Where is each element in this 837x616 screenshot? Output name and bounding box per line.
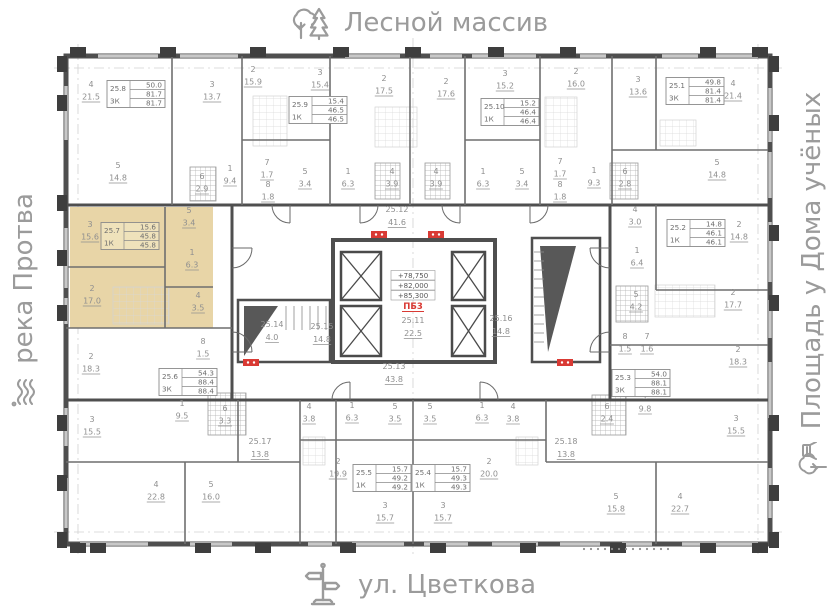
room-label: 315.5 (83, 415, 101, 437)
svg-text:5: 5 (714, 158, 719, 167)
svg-text:3: 3 (89, 415, 94, 424)
svg-text:2: 2 (250, 65, 255, 74)
svg-text:6.3: 6.3 (476, 414, 489, 423)
room-label: 421.4 (724, 79, 742, 101)
apartment-25.4[interactable]: 25.41К15.749.349.3 (412, 464, 470, 491)
common-label: 25.1713.8 (249, 437, 272, 460)
elevation-marks: +78,750+82,000+85,300ПБ3 (391, 271, 435, 313)
svg-text:5: 5 (427, 402, 432, 411)
svg-text:5: 5 (302, 167, 307, 176)
svg-text:22.5: 22.5 (404, 329, 422, 338)
svg-text:6: 6 (199, 172, 204, 181)
svg-text:16.0: 16.0 (202, 493, 220, 502)
svg-text:3: 3 (733, 414, 738, 423)
room-label: 219.9 (329, 457, 347, 479)
svg-text:18.3: 18.3 (82, 365, 100, 374)
svg-text:1: 1 (349, 401, 354, 410)
svg-text:88.4: 88.4 (198, 377, 214, 386)
svg-text:3К: 3К (162, 385, 172, 394)
svg-text:46.1: 46.1 (706, 237, 722, 246)
svg-text:1К: 1К (356, 481, 366, 490)
svg-text:15.5: 15.5 (727, 427, 745, 436)
svg-text:3.9: 3.9 (386, 180, 399, 189)
svg-text:4: 4 (195, 291, 200, 300)
svg-text:1: 1 (179, 399, 184, 408)
svg-text:17.0: 17.0 (83, 297, 101, 306)
svg-text:4: 4 (306, 402, 311, 411)
svg-text:45.8: 45.8 (140, 231, 156, 240)
room-label: 53.5 (423, 402, 437, 424)
apartment-25.5[interactable]: 25.51К15.749.249.2 (353, 464, 411, 491)
svg-text:81.7: 81.7 (146, 89, 162, 98)
svg-text:+82,000: +82,000 (398, 282, 428, 290)
svg-text:46.1: 46.1 (706, 228, 722, 237)
svg-text:13.8: 13.8 (251, 450, 269, 459)
common-label: 25.1241.6 (386, 205, 409, 228)
svg-text:20.0: 20.0 (480, 470, 498, 479)
svg-text:88.1: 88.1 (651, 378, 667, 387)
svg-text:2: 2 (736, 220, 741, 229)
elevator-core (333, 240, 495, 362)
svg-text:50.0: 50.0 (146, 80, 162, 89)
room-label: 217.6 (437, 77, 455, 99)
svg-text:6.3: 6.3 (346, 414, 359, 423)
svg-text:15.7: 15.7 (434, 514, 452, 523)
svg-text:25.11: 25.11 (402, 316, 425, 325)
svg-text:4.0: 4.0 (266, 333, 279, 342)
room-label: 81.5 (196, 337, 210, 359)
svg-text:3.8: 3.8 (303, 415, 316, 424)
svg-text:8: 8 (557, 180, 562, 189)
svg-text:21.4: 21.4 (724, 92, 742, 101)
room-label: 71.7 (260, 158, 274, 180)
floor-plan-area: 421.5313.7215.9315.4217.5217.6315.2216.0… (0, 0, 837, 612)
apartment-25.9[interactable]: 25.91К15.446.546.5 (289, 96, 347, 123)
svg-text:1.5: 1.5 (619, 345, 632, 354)
svg-text:17.5: 17.5 (375, 87, 393, 96)
svg-text:2.4: 2.4 (601, 415, 614, 424)
svg-text:2: 2 (735, 345, 740, 354)
room-label: 43.8 (506, 402, 520, 424)
svg-text:25.6: 25.6 (162, 372, 178, 381)
svg-text:6: 6 (222, 404, 227, 413)
apartment-25.2[interactable]: 25.21К14.846.146.1 (667, 219, 725, 246)
svg-text:2: 2 (730, 288, 735, 297)
svg-text:3: 3 (382, 501, 387, 510)
svg-text:6: 6 (604, 402, 609, 411)
svg-text:15.2: 15.2 (496, 82, 514, 91)
room-label: 19.4 (223, 164, 237, 186)
svg-text:3.9: 3.9 (430, 180, 443, 189)
svg-text:3.5: 3.5 (192, 304, 205, 313)
room-label: 220.0 (480, 457, 498, 479)
svg-text:1: 1 (345, 167, 350, 176)
svg-text:49.3: 49.3 (451, 473, 467, 482)
common-label: 25.144.0 (261, 320, 284, 343)
svg-text:5: 5 (186, 206, 191, 215)
room-label: 313.6 (629, 75, 647, 97)
svg-text:81.4: 81.4 (705, 86, 721, 95)
svg-text:4: 4 (433, 167, 438, 176)
svg-text:13.7: 13.7 (203, 93, 221, 102)
svg-text:46.5: 46.5 (328, 114, 344, 123)
svg-text:17.6: 17.6 (437, 90, 455, 99)
svg-text:15.6: 15.6 (140, 222, 156, 231)
apartment-25.3[interactable]: 25.33К54.088.188.1 (612, 369, 670, 396)
svg-text:1.7: 1.7 (554, 170, 567, 179)
svg-text:6.3: 6.3 (477, 180, 490, 189)
svg-text:13.6: 13.6 (629, 88, 647, 97)
room-label: 16.3 (476, 167, 490, 189)
svg-text:46.4: 46.4 (520, 107, 536, 116)
svg-text:15.4: 15.4 (311, 81, 329, 90)
svg-text:1.8: 1.8 (262, 193, 275, 202)
room-label: 81.8 (261, 180, 275, 202)
svg-text:25.13: 25.13 (383, 362, 406, 371)
svg-text:25.10: 25.10 (484, 102, 505, 111)
svg-text:17.7: 17.7 (724, 301, 742, 310)
svg-text:25.14: 25.14 (261, 320, 284, 329)
svg-text:25.7: 25.7 (104, 226, 120, 235)
svg-text:46.5: 46.5 (328, 105, 344, 114)
svg-text:3: 3 (502, 69, 507, 78)
svg-text:5: 5 (208, 480, 213, 489)
svg-text:8: 8 (622, 332, 627, 341)
svg-text:4: 4 (510, 402, 515, 411)
room-label: 422.8 (147, 480, 165, 502)
room-label: 515.8 (607, 492, 625, 514)
room-label: 53.4 (515, 167, 529, 189)
svg-text:9.5: 9.5 (176, 412, 189, 421)
svg-text:3.0: 3.0 (629, 218, 642, 227)
svg-text:2: 2 (381, 74, 386, 83)
svg-text:8: 8 (200, 337, 205, 346)
svg-text:3: 3 (209, 80, 214, 89)
room-label: 214.8 (730, 220, 748, 242)
svg-text:81.4: 81.4 (705, 95, 721, 104)
svg-text:49.2: 49.2 (392, 473, 408, 482)
svg-text:14.8: 14.8 (492, 327, 510, 336)
svg-text:3.4: 3.4 (183, 219, 196, 228)
svg-text:25.2: 25.2 (670, 223, 686, 232)
room-label: 16.3 (345, 401, 359, 423)
common-label: 25.1813.8 (555, 437, 578, 460)
svg-text:49.2: 49.2 (392, 482, 408, 491)
room-label: 421.5 (82, 80, 100, 102)
apartment-25.6[interactable]: 25.63К54.388.488.4 (159, 368, 217, 395)
svg-text:14.8: 14.8 (706, 219, 722, 228)
room-label: 315.7 (434, 501, 452, 523)
svg-text:2: 2 (573, 67, 578, 76)
svg-text:13.8: 13.8 (557, 450, 575, 459)
svg-text:3: 3 (317, 68, 322, 77)
svg-text:3: 3 (440, 501, 445, 510)
room-label: 19.3 (587, 166, 601, 188)
svg-text:6.3: 6.3 (186, 261, 199, 270)
svg-text:18.3: 18.3 (729, 358, 747, 367)
svg-text:25.12: 25.12 (386, 205, 409, 214)
svg-text:25.4: 25.4 (415, 468, 431, 477)
svg-text:3К: 3К (669, 94, 679, 103)
apartment-25.1[interactable]: 25.13К49.881.481.4 (666, 77, 724, 104)
svg-text:14.8: 14.8 (109, 174, 127, 183)
svg-text:3.5: 3.5 (389, 415, 402, 424)
room-label: 514.8 (109, 161, 127, 183)
svg-text:5: 5 (613, 492, 618, 501)
svg-text:16.0: 16.0 (567, 80, 585, 89)
svg-text:2: 2 (88, 352, 93, 361)
room-label: 19.5 (175, 399, 189, 421)
svg-text:1: 1 (480, 167, 485, 176)
room-label: 422.7 (671, 492, 689, 514)
svg-text:21.5: 21.5 (82, 93, 100, 102)
svg-text:25.16: 25.16 (490, 314, 513, 323)
svg-text:54.0: 54.0 (651, 369, 667, 378)
svg-text:4: 4 (389, 167, 394, 176)
svg-text:6.3: 6.3 (342, 180, 355, 189)
svg-text:15.7: 15.7 (451, 464, 467, 473)
room-label: 16.3 (475, 401, 489, 423)
room-label: 71.6 (640, 332, 654, 354)
svg-text:4: 4 (88, 80, 93, 89)
svg-text:46.4: 46.4 (520, 116, 536, 125)
room-label: 16.4 (630, 246, 644, 268)
room-label: 516.0 (202, 480, 220, 502)
svg-text:25.15: 25.15 (311, 322, 334, 331)
room-label: 16.3 (341, 167, 355, 189)
svg-text:88.4: 88.4 (198, 386, 214, 395)
room-label: 43.8 (302, 402, 316, 424)
room-label: 53.4 (298, 167, 312, 189)
svg-text:2: 2 (335, 457, 340, 466)
svg-text:1.7: 1.7 (261, 171, 274, 180)
apartment-25.7[interactable]: 25.71К15.645.845.8 (101, 222, 159, 249)
svg-text:1.6: 1.6 (641, 345, 654, 354)
svg-text:1: 1 (634, 246, 639, 255)
room-label: 81.8 (553, 180, 567, 202)
svg-text:25.8: 25.8 (110, 84, 126, 93)
svg-text:3К: 3К (615, 386, 625, 395)
svg-text:15.6: 15.6 (81, 233, 99, 242)
svg-text:8: 8 (265, 180, 270, 189)
svg-text:25.18: 25.18 (555, 437, 578, 446)
common-label: 25.1343.8 (383, 362, 406, 385)
svg-text:4: 4 (632, 205, 637, 214)
svg-text:88.1: 88.1 (651, 387, 667, 396)
room-label: 313.7 (203, 80, 221, 102)
svg-text:2.8: 2.8 (619, 180, 632, 189)
room-label: 216.0 (567, 67, 585, 89)
room-label: 217.5 (375, 74, 393, 96)
room-label: 43.0 (628, 205, 642, 227)
svg-text:4.2: 4.2 (630, 303, 643, 312)
room-label: 53.5 (388, 402, 402, 424)
room-label: 315.5 (727, 414, 745, 436)
svg-text:43.8: 43.8 (385, 375, 403, 384)
svg-text:2: 2 (486, 457, 491, 466)
svg-text:15.7: 15.7 (392, 464, 408, 473)
svg-text:25.3: 25.3 (615, 373, 631, 382)
svg-text:7: 7 (264, 158, 269, 167)
svg-text:3.4: 3.4 (299, 180, 312, 189)
svg-text:15.8: 15.8 (607, 505, 625, 514)
svg-text:1К: 1К (670, 236, 680, 245)
room-label: 71.7 (553, 157, 567, 179)
svg-text:9.3: 9.3 (588, 179, 601, 188)
svg-text:1: 1 (591, 166, 596, 175)
svg-text:9.4: 9.4 (224, 177, 237, 186)
svg-text:5: 5 (115, 161, 120, 170)
svg-text:14.8: 14.8 (730, 233, 748, 242)
svg-text:3: 3 (635, 75, 640, 84)
svg-text:1К: 1К (484, 115, 494, 124)
svg-text:25.1: 25.1 (669, 81, 685, 90)
svg-text:1: 1 (189, 248, 194, 257)
svg-text:1.5: 1.5 (197, 350, 210, 359)
svg-text:1К: 1К (415, 481, 425, 490)
svg-text:7: 7 (644, 332, 649, 341)
svg-text:25.9: 25.9 (292, 100, 308, 109)
room-label: 315.4 (311, 68, 329, 90)
svg-text:22.7: 22.7 (671, 505, 689, 514)
svg-text:15.9: 15.9 (244, 78, 262, 87)
svg-text:15.5: 15.5 (83, 428, 101, 437)
svg-text:2: 2 (89, 284, 94, 293)
svg-text:5: 5 (392, 402, 397, 411)
svg-text:25.17: 25.17 (249, 437, 272, 446)
apartment-25.10[interactable]: 25.101К15.246.446.4 (481, 98, 539, 125)
svg-text:14.8: 14.8 (708, 171, 726, 180)
svg-text:1: 1 (227, 164, 232, 173)
svg-text:1К: 1К (104, 239, 114, 248)
svg-text:6.4: 6.4 (631, 259, 644, 268)
svg-text:49.3: 49.3 (451, 482, 467, 491)
common-label: 25.1614.8 (490, 314, 513, 337)
svg-text:9.8: 9.8 (639, 405, 652, 414)
svg-text:4: 4 (153, 480, 158, 489)
svg-text:4: 4 (677, 492, 682, 501)
svg-text:22.8: 22.8 (147, 493, 165, 502)
svg-text:81.7: 81.7 (146, 98, 162, 107)
svg-text:2: 2 (443, 77, 448, 86)
svg-text:3.8: 3.8 (507, 415, 520, 424)
room-label: 514.8 (708, 158, 726, 180)
room-label: 315.7 (376, 501, 394, 523)
svg-text:14.8: 14.8 (313, 335, 331, 344)
svg-text:25.5: 25.5 (356, 468, 372, 477)
svg-text:49.8: 49.8 (705, 77, 721, 86)
svg-text:ПБ3: ПБ3 (403, 302, 423, 312)
svg-text:+85,300: +85,300 (398, 292, 428, 300)
svg-text:3.3: 3.3 (219, 417, 232, 426)
room-label: 81.5 (618, 332, 632, 354)
room-label: 218.3 (729, 345, 747, 367)
room-label: 217.7 (724, 288, 742, 310)
svg-text:7: 7 (557, 157, 562, 166)
room-label: 315.2 (496, 69, 514, 91)
svg-text:2.9: 2.9 (196, 185, 209, 194)
svg-text:3.4: 3.4 (516, 180, 529, 189)
svg-text:5: 5 (519, 167, 524, 176)
svg-text:1.8: 1.8 (554, 193, 567, 202)
svg-text:45.8: 45.8 (140, 240, 156, 249)
svg-text:+78,750: +78,750 (398, 272, 428, 280)
svg-text:41.6: 41.6 (388, 218, 406, 227)
svg-text:3.5: 3.5 (424, 415, 437, 424)
svg-text:15.4: 15.4 (328, 96, 344, 105)
room-label: 218.3 (82, 352, 100, 374)
svg-text:1: 1 (479, 401, 484, 410)
svg-text:15.7: 15.7 (376, 514, 394, 523)
svg-text:4: 4 (730, 79, 735, 88)
svg-text:3К: 3К (110, 97, 120, 106)
floor-plan: 421.5313.7215.9315.4217.5217.6315.2216.0… (0, 0, 837, 612)
apartment-25.8[interactable]: 25.83К50.081.781.7 (107, 80, 165, 107)
svg-text:6: 6 (622, 167, 627, 176)
svg-text:54.3: 54.3 (198, 368, 214, 377)
svg-text:15.2: 15.2 (520, 98, 536, 107)
svg-text:1К: 1К (292, 113, 302, 122)
svg-text:19.9: 19.9 (329, 470, 347, 479)
svg-text:5: 5 (633, 290, 638, 299)
svg-text:3: 3 (87, 220, 92, 229)
